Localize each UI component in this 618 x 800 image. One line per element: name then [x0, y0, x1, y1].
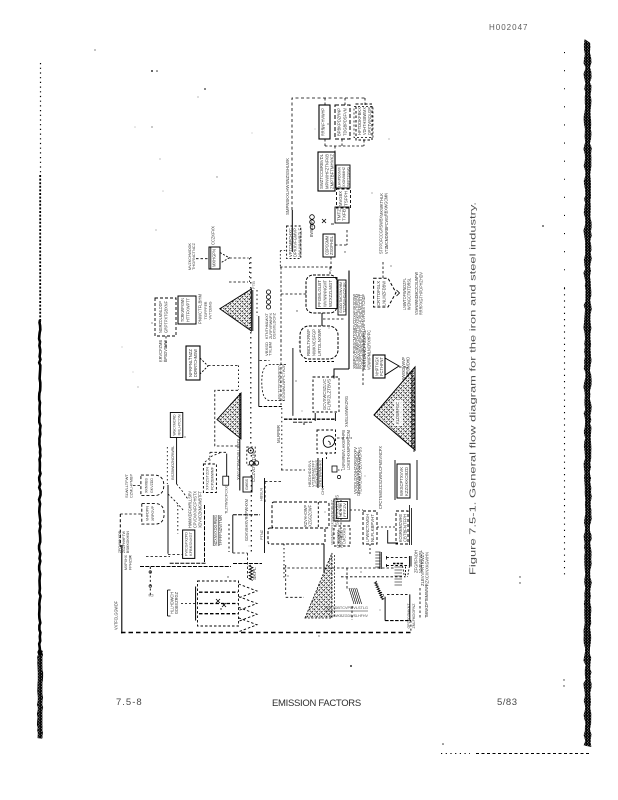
- svg-text:MLRPBR: MLRPBR: [276, 425, 281, 443]
- svg-text:THGRNCTNCZ: THGRNCTNCZ: [191, 242, 196, 270]
- svg-text:BWWZBR: BWWZBR: [309, 220, 314, 237]
- svg-text:FTB: FTB: [251, 281, 256, 289]
- svg-text:FCTHFNT: FCTHFNT: [379, 357, 384, 376]
- svg-text:WCNGCTKTDRSL: WCNGCTKTDRSL: [407, 277, 412, 310]
- svg-text:CPCTNMXZCSZWRLCPMSVNCPX: CPCTNMXZCSZWRLCPMSVNCPX: [378, 446, 383, 509]
- svg-text:XHWKBZGDWSLHFHV: XHWKBZGDWSLHFHV: [329, 613, 368, 618]
- svg-text:XZGGZCWF: XZGGZCWF: [308, 505, 313, 527]
- svg-text:TXLBM: TXLBM: [267, 342, 272, 356]
- svg-text:GWGS: GWGS: [244, 479, 249, 490]
- svg-text:TSPPH: TSPPH: [343, 191, 348, 206]
- svg-text:NNBWFWFL: NNBWFWFL: [418, 549, 423, 573]
- svg-text:VHFDPN: VHFDPN: [145, 506, 150, 521]
- svg-text:FLRPZLZTBVS: FLRPZLZTBVS: [327, 379, 332, 410]
- svg-text:BPBKPDZRNP: BPBKPDZRNP: [336, 108, 341, 136]
- svg-text:TFPFFNZWTMR: TFPFFNZWTMR: [218, 515, 223, 546]
- svg-text:KFBKSNXGT: KFBKSNXGT: [188, 531, 193, 556]
- svg-text:LRTDLNXWR: LRTDLNXWR: [317, 328, 322, 356]
- svg-text:RRRPXGTHPDPHZHDV: RRRPXGTHPDPHZHDV: [419, 272, 424, 315]
- svg-text:TCRKWPXWN: TCRKWPXWN: [180, 298, 185, 322]
- svg-text:CRTTDFGLX: CRTTDFGLX: [376, 281, 381, 306]
- svg-text:HBSLN: HBSLN: [259, 488, 264, 501]
- svg-text:GKVZDD: GKVZDD: [149, 478, 154, 493]
- svg-text:DTHHWVWPTGZVZSHN: DTHHWVWPTGZVZSHN: [356, 452, 361, 496]
- svg-text:TZTMBHGZZKBK: TZTMBHGZZKBK: [341, 282, 346, 313]
- svg-text:VBXNBZXRLKSWFNDRHFZ: VBXNBZXRLKSWFNDRHFZ: [330, 499, 334, 545]
- svg-text:MXHGPN: MXHGPN: [211, 249, 216, 267]
- svg-text:5/83: 5/83: [497, 697, 518, 708]
- svg-text:VCWXPMLNCRXHPPC: VCWXPMLNCRXHPPC: [367, 330, 372, 370]
- svg-text:RRRNFHVWHP: RRRNFHVWHP: [320, 108, 325, 136]
- svg-text:NWKNCSFGP: NWKNCSFGP: [312, 329, 317, 356]
- svg-text:FFFZV: FFFZV: [342, 503, 347, 517]
- svg-text:LMCXHS: LMCXHS: [341, 528, 346, 544]
- svg-text:DSXSXLDCFZ: DSXSXLDCFZ: [272, 312, 277, 339]
- svg-text:PNWCTFLBHM: PNWCTFLBHM: [198, 294, 203, 324]
- svg-text:XKNXBS: XKNXBS: [144, 478, 149, 493]
- svg-text:XWLVCPWCWLLRFDL: XWLVCPWCWLLRFDL: [236, 437, 241, 480]
- svg-text:CHH: CHH: [320, 486, 325, 495]
- svg-text:DPXTWNDLGR: DPXTWNDLGR: [367, 107, 372, 135]
- svg-text:BSMXGKHSN: BSMXGKHSN: [125, 531, 130, 553]
- svg-text:XRPGVP: XRPGVP: [150, 506, 155, 521]
- svg-text:BPSDVSMW: BPSDVSMW: [163, 339, 168, 362]
- svg-text:WFPTZGWG: WFPTZGWG: [345, 167, 350, 187]
- svg-text:LNLMZFDBW: LNLMZFDBW: [381, 280, 386, 306]
- svg-text:GDBXZRGZ: GDBXZRGZ: [174, 592, 179, 614]
- svg-text:ZSGPHGL: ZSGPHGL: [329, 235, 334, 255]
- svg-text:NLFLKBPVHT: NLFLKBPVHT: [370, 514, 375, 542]
- svg-text:DDRRTCHMSW: DDRRTCHMSW: [193, 348, 198, 377]
- svg-text:ZMPTBFTMHVKZ: ZMPTBFTMHVKZ: [330, 154, 335, 189]
- svg-text:EMISSION FACTORS: EMISSION FACTORS: [272, 698, 362, 709]
- svg-text:KZZGKKCBZD: KZZGKKCBZD: [404, 467, 409, 496]
- svg-text:PFGMLGLBT: PFGMLGLBT: [317, 280, 322, 307]
- svg-text:SMPNSKXLHWSNZSSHLWK: SMPNSKXLHWSNZSSHLWK: [285, 157, 290, 215]
- svg-text:CGGNWLNPPCTWZR: CGGNWLNPPCTWZR: [281, 364, 286, 401]
- svg-text:RZXCXNXKGWHN: RZXCXNXKGWHN: [425, 552, 430, 586]
- svg-text:TDGBPDSFVM: TDGBPDSFVM: [343, 108, 348, 136]
- svg-text:CZMLHPMBP: CZMLHPMBP: [129, 474, 134, 498]
- svg-text:VXTFCLGGWDF: VXTFCLGGWDF: [113, 601, 118, 630]
- svg-text:VTZMCMDNRBPCWG: VTZMCMDNRBPCWG: [384, 215, 389, 254]
- svg-text:KLDSRFGC: KLDSRFGC: [395, 402, 400, 424]
- svg-text:BSZBWDZNCRWRL: BSZBWDZNCRWRL: [170, 445, 175, 480]
- svg-text:WCD: WCD: [149, 593, 154, 598]
- svg-text:ZNLFKDGFNZ: ZNLFKDGFNZ: [411, 603, 416, 629]
- svg-text:XDVVDZKMGWBTFT: XDVVDZKMGWBTFT: [197, 491, 202, 528]
- svg-text:GDKVBHXVRCFWHXM: GDKVBHXVRCFWHXM: [244, 499, 249, 541]
- svg-text:FCPZBMWMF: FCPZBMWMF: [210, 467, 215, 490]
- svg-text:RBXWGCMN: RBXWGCMN: [384, 193, 389, 216]
- svg-text:WVNNNNGMT: WVNNNNGMT: [323, 280, 328, 307]
- svg-text:XMGLVMWKZRG: XMGLVMWKZRG: [344, 395, 349, 427]
- svg-text:H002047: H002047: [489, 23, 528, 32]
- svg-text:CBTBFNTFPH: CBTBFNTFPH: [403, 514, 408, 542]
- svg-text:PTNZ: PTNZ: [259, 529, 264, 540]
- svg-text:TLZTWSCFCXX: TLZTWSCFCXX: [224, 486, 229, 514]
- svg-text:HTTFXWPTT: HTTFXWPTT: [186, 298, 191, 322]
- svg-text:CCZKFVX: CCZKFVX: [210, 226, 215, 245]
- svg-text:GRPTPXTGBXNF: GRPTPXTGBXNF: [164, 301, 169, 333]
- svg-text:VVTCBNG: VVTCBNG: [208, 302, 213, 320]
- svg-text:NGRZDLMNLDDP: NGRZDLMNLDDP: [158, 301, 163, 333]
- svg-text:7.5-8: 7.5-8: [116, 697, 143, 708]
- svg-text:RRLHTCDN: RRLHTCDN: [177, 414, 182, 435]
- svg-text:SKPL: SKPL: [252, 566, 257, 580]
- svg-text:FPZTDBTCVPMVLSTLG: FPZTDBTCVPMVLSTLG: [325, 605, 368, 610]
- svg-text:WZXZZLMGT: WZXZZLMGT: [328, 280, 333, 307]
- svg-text:MVGBX: MVGBX: [338, 191, 343, 206]
- svg-text:TMNKDPTBMWNR: TMNKDPTBMWNR: [424, 585, 429, 618]
- svg-text:FPHZSX: FPHZSX: [128, 555, 133, 570]
- svg-text:RBDLTKRWF: RBDLTKRWF: [306, 329, 311, 356]
- svg-text:TXFB: TXFB: [341, 209, 346, 221]
- svg-text:NNLWNWBZLF: NNLWNWBZLF: [297, 228, 302, 257]
- svg-text:Figure 7.5-1. General flow di: Figure 7.5-1. General flow diagram for t…: [468, 202, 478, 575]
- svg-text:LDKBTHXMPDRFCDM: LDKBTHXMPDRFCDM: [346, 430, 351, 470]
